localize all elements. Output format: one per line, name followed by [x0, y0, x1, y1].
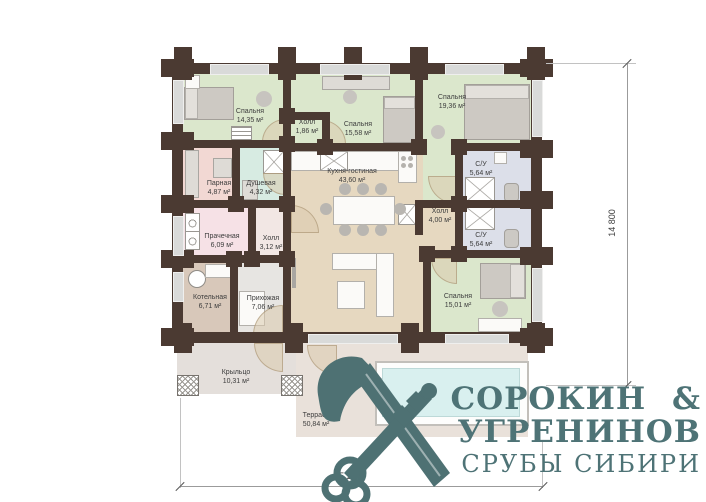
window: [445, 64, 504, 75]
log-crossing: [317, 139, 333, 155]
logo-text: СОРОКИН & УГРЕНИНОВ СРУБЫ СИБИРИ: [450, 383, 701, 480]
porch-column: [177, 375, 199, 396]
log-crossing: [451, 139, 467, 155]
dimension-height-label: 14 800: [607, 183, 617, 263]
chair: [339, 224, 351, 236]
rug: [492, 301, 508, 317]
bathtub: [504, 229, 519, 248]
sauna-stove: [213, 158, 232, 178]
sink: [494, 152, 507, 164]
bed-pillow: [510, 264, 525, 298]
log-crossing: [226, 251, 242, 267]
wall-segment: [423, 250, 431, 332]
washing-machine: [185, 213, 200, 232]
log-crossing: [161, 328, 194, 346]
window: [173, 216, 184, 256]
room-label-bedroom-3: Спальня19,36 м²: [438, 93, 466, 111]
window: [532, 268, 543, 322]
log-crossing: [451, 196, 467, 212]
log-crossing: [161, 195, 194, 213]
room-label-sauna: Парная4,87 м²: [207, 179, 231, 197]
bed-pillow: [465, 85, 529, 99]
log-crossing: [244, 251, 260, 267]
room-label-hall-2: Холл3,12 м²: [260, 234, 283, 252]
rug: [256, 91, 272, 107]
room-label-porch: Крыльцо10,31 м²: [222, 368, 251, 386]
wall-segment: [248, 208, 256, 255]
stove-burner: [408, 163, 413, 168]
chair: [375, 224, 387, 236]
dining-table: [333, 196, 395, 225]
logo-line-2: УГРЕНИНОВ: [450, 416, 701, 449]
stove-burner: [401, 163, 406, 168]
wall-segment: [423, 250, 531, 258]
chair: [357, 224, 369, 236]
floor-plan-canvas: Спальня14,35 м²Холл1,86 м²Спальня15,58 м…: [0, 0, 706, 502]
log-crossing: [520, 247, 553, 265]
log-crossing: [279, 108, 295, 124]
boiler: [188, 270, 206, 288]
window: [320, 64, 390, 75]
window: [532, 80, 543, 137]
logo-line-3: СРУБЫ СИБИРИ: [450, 449, 701, 480]
log-crossing: [451, 246, 467, 262]
log-crossing: [410, 47, 428, 80]
shower: [465, 206, 495, 230]
room-label-laundry: Прачечная6,09 м²: [204, 232, 239, 250]
stove-burner: [408, 156, 413, 161]
bed-pillow: [185, 88, 198, 119]
log-crossing: [278, 47, 296, 80]
room-label-bedroom-4: Спальня15,01 м²: [444, 292, 472, 310]
rug: [343, 90, 357, 104]
room-label-hall-3: Холл4,00 м²: [429, 207, 452, 225]
log-crossing: [520, 191, 553, 209]
room-label-kitchen-living: Кухня-гостиная43,60 м²: [327, 167, 377, 185]
chair: [375, 183, 387, 195]
bench: [478, 318, 522, 332]
log-crossing: [419, 246, 435, 262]
room-label-bathroom-2: С/У5,64 м²: [470, 231, 493, 249]
log-crossing: [228, 196, 244, 212]
log-crossing: [520, 59, 553, 77]
wall-segment: [183, 140, 283, 148]
log-crossing: [411, 139, 427, 155]
room-label-hall-small: Холл1,86 м²: [296, 118, 319, 136]
stove-burner: [401, 156, 406, 161]
sofa: [376, 253, 394, 317]
dimension-line: [546, 63, 636, 64]
room-label-bathroom-1: С/У5,64 м²: [470, 160, 493, 178]
window: [210, 64, 269, 75]
dimension-line: [180, 398, 181, 488]
logo-line-1: СОРОКИН &: [450, 383, 701, 416]
dimension-line: [627, 63, 628, 386]
log-crossing: [161, 59, 194, 77]
log-crossing: [520, 140, 553, 158]
wall-segment: [415, 200, 531, 208]
room-label-bedroom-2: Спальня15,58 м²: [344, 120, 372, 138]
wall-segment: [232, 148, 240, 200]
wall-segment: [230, 263, 238, 332]
wall-segment: [291, 143, 423, 151]
room-label-boiler-room: Котельная6,71 м²: [193, 293, 227, 311]
log-crossing: [161, 132, 194, 150]
axe-and-key-logo-icon: [298, 337, 468, 502]
bed-pillow: [384, 97, 415, 109]
coffee-table: [337, 281, 365, 309]
log-crossing: [279, 251, 295, 267]
log-crossing: [279, 136, 295, 152]
rug: [431, 125, 445, 139]
sauna-bench: [185, 150, 199, 198]
washing-machine: [185, 231, 200, 250]
chair: [320, 203, 332, 215]
window: [173, 272, 184, 302]
room-label-shower-room: Душевая4,32 м²: [246, 179, 275, 197]
window: [173, 80, 184, 124]
room-label-entryway: Прихожая7,06 м²: [247, 294, 279, 312]
log-crossing: [520, 328, 553, 346]
chair: [394, 203, 406, 215]
room-label-bedroom-1: Спальня14,35 м²: [236, 107, 264, 125]
shower: [263, 150, 285, 174]
log-crossing: [279, 196, 295, 212]
wall-segment: [415, 200, 423, 235]
